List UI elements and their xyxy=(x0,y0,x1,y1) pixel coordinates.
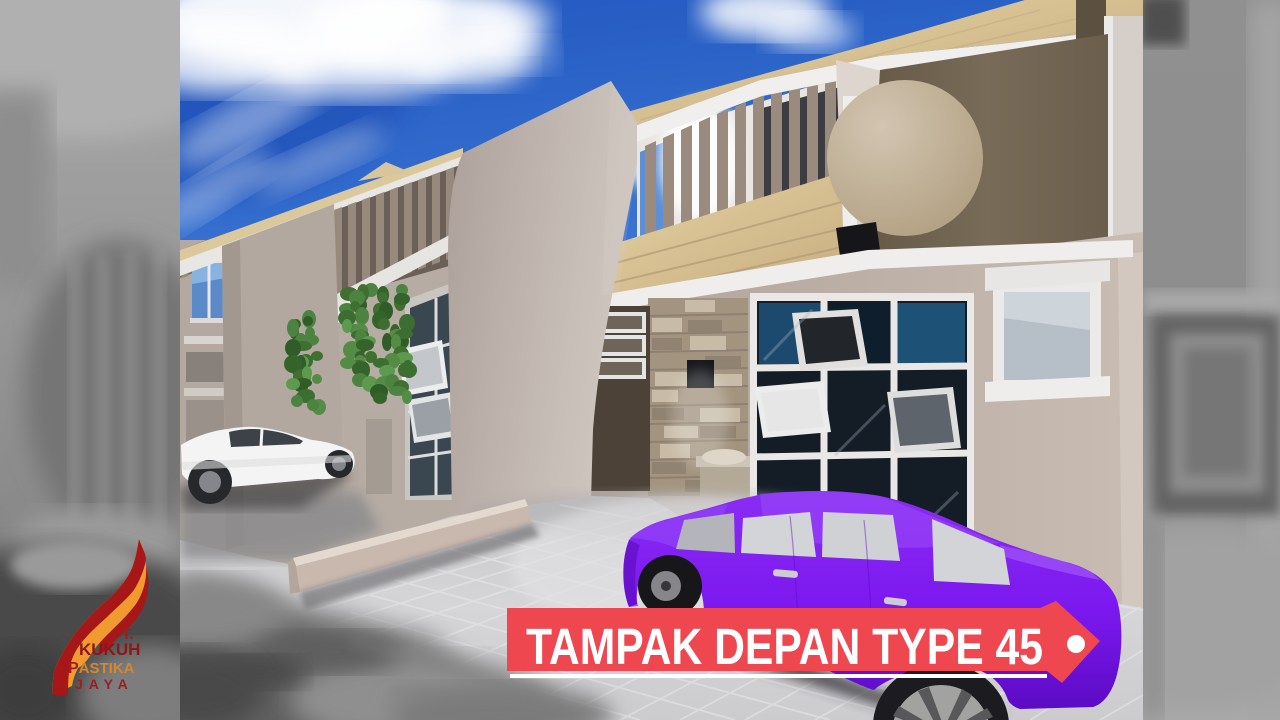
svg-text:TAMPAK DEPAN TYPE 45: TAMPAK DEPAN TYPE 45 xyxy=(526,618,1043,675)
svg-text:KUKUH: KUKUH xyxy=(79,640,140,659)
svg-text:JAYA: JAYA xyxy=(75,676,134,692)
svg-text:PASTIKA: PASTIKA xyxy=(68,660,135,677)
